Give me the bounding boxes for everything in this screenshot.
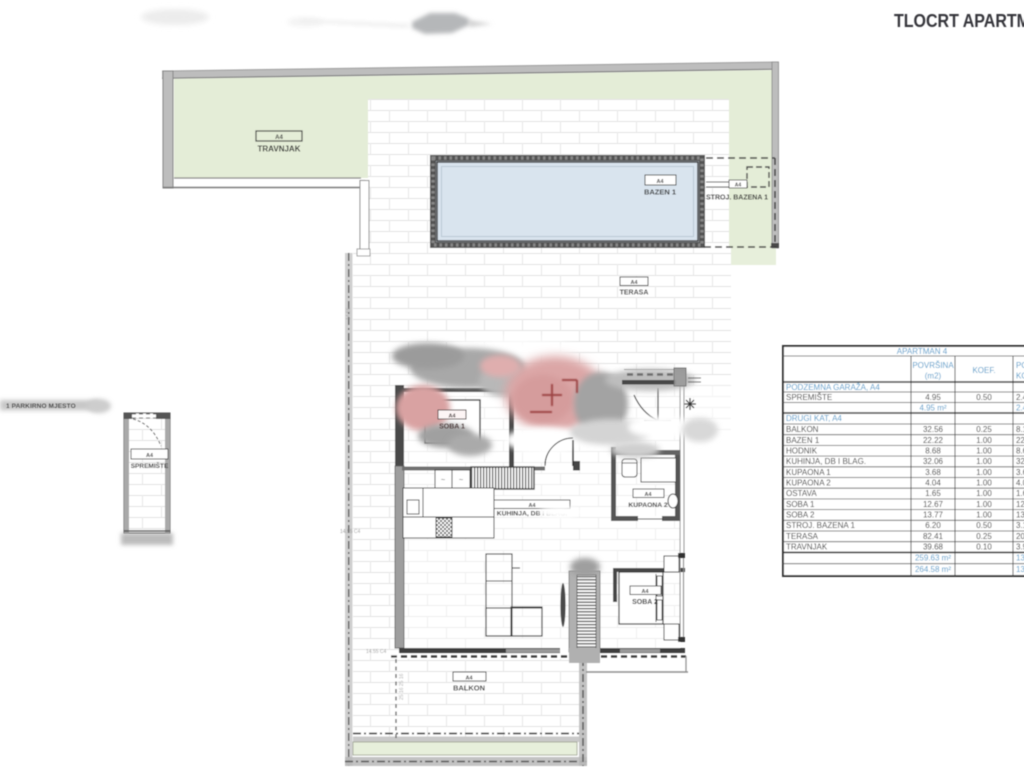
svg-text:139.91 m²: 139.91 m²: [1016, 565, 1024, 574]
svg-text:TERASA: TERASA: [620, 290, 649, 297]
svg-text:1.00: 1.00: [976, 468, 992, 477]
svg-text:SOBA 2: SOBA 2: [632, 599, 658, 606]
svg-text:KUHINJA, DB I BLAG.: KUHINJA, DB I BLAG.: [786, 457, 866, 466]
svg-text:OSTAVA: OSTAVA: [786, 489, 817, 498]
svg-text:1 PARKIRNO MJESTO: 1 PARKIRNO MJESTO: [6, 403, 76, 410]
svg-text:SPREMIŠTE: SPREMIŠTE: [131, 461, 169, 470]
svg-text:STROJ. BAZENA 1: STROJ. BAZENA 1: [706, 195, 768, 202]
svg-text:STROJ. BAZENA 1: STROJ. BAZENA 1: [786, 521, 855, 530]
svg-text:SOBA 1: SOBA 1: [786, 500, 815, 509]
svg-text:13.77: 13.77: [923, 511, 944, 520]
svg-text:1.00: 1.00: [976, 479, 992, 488]
svg-text:22.22: 22.22: [1016, 436, 1024, 445]
svg-text:DRUGI KAT, A4: DRUGI KAT, A4: [786, 414, 842, 423]
svg-text:1.65: 1.65: [1016, 489, 1024, 498]
svg-text:A4: A4: [735, 183, 742, 189]
svg-text:32.06: 32.06: [923, 457, 944, 466]
svg-text:A4: A4: [448, 414, 456, 420]
svg-text:12.67: 12.67: [1016, 500, 1024, 509]
svg-text:3.68: 3.68: [925, 468, 941, 477]
svg-text:KUPAONA 2: KUPAONA 2: [628, 502, 667, 509]
svg-text:0.50: 0.50: [976, 393, 992, 402]
svg-text:4.95: 4.95: [925, 393, 941, 402]
svg-text:TRAVNJAK: TRAVNJAK: [786, 543, 828, 552]
svg-text:82.41: 82.41: [923, 532, 944, 541]
svg-text:~: ~: [441, 477, 445, 484]
svg-text:KUPAONA 2: KUPAONA 2: [786, 479, 831, 488]
svg-text:TERASA: TERASA: [786, 532, 819, 541]
svg-text:BAZEN 1: BAZEN 1: [786, 436, 820, 445]
svg-text:1.00: 1.00: [976, 500, 992, 509]
svg-text:SOBA 1: SOBA 1: [439, 424, 465, 431]
svg-text:1.00: 1.00: [976, 436, 992, 445]
svg-text:2.48: 2.48: [1016, 393, 1024, 402]
svg-text:HODNIK: HODNIK: [786, 447, 818, 456]
svg-text:4.95 m²: 4.95 m²: [919, 404, 946, 413]
svg-text:A4: A4: [465, 676, 473, 682]
svg-text:8.68: 8.68: [925, 447, 941, 456]
svg-text:20.60: 20.60: [1016, 532, 1024, 541]
svg-text:32.06: 32.06: [1016, 457, 1024, 466]
svg-text:32.56: 32.56: [923, 425, 944, 434]
svg-text:12.67: 12.67: [923, 500, 944, 509]
svg-text:POVRŠINA: POVRŠINA: [912, 361, 954, 370]
svg-text:1.65: 1.65: [925, 489, 941, 498]
svg-text:0.25: 0.25: [976, 532, 992, 541]
svg-text:3.10: 3.10: [1016, 521, 1024, 530]
svg-text:POVRŠINA: POVRŠINA: [1016, 361, 1024, 370]
svg-text:134.96 m²: 134.96 m²: [1016, 554, 1024, 563]
svg-text:BALKON: BALKON: [453, 684, 485, 693]
svg-text:A4: A4: [644, 492, 652, 498]
svg-text:2.48 m²: 2.48 m²: [1016, 404, 1024, 413]
svg-text:8.14: 8.14: [1016, 425, 1024, 434]
svg-text:SOBA 2: SOBA 2: [786, 511, 815, 520]
svg-text:A4: A4: [528, 503, 536, 509]
svg-text:0.10: 0.10: [976, 543, 992, 552]
svg-text:13.77: 13.77: [1016, 511, 1024, 520]
svg-text:25 16 25 16: 25 16 25 16: [399, 673, 405, 700]
svg-text:1.00: 1.00: [976, 447, 992, 456]
svg-text:264.58 m²: 264.58 m²: [915, 565, 951, 574]
svg-text:0.50: 0.50: [976, 521, 992, 530]
svg-text:259.63 m²: 259.63 m²: [915, 554, 951, 563]
svg-text:4.04: 4.04: [925, 479, 941, 488]
svg-text:3.97: 3.97: [1016, 543, 1024, 552]
svg-text:1.00: 1.00: [976, 457, 992, 466]
svg-text:14.55 C4: 14.55 C4: [340, 529, 361, 535]
svg-text:1.00: 1.00: [976, 511, 992, 520]
svg-text:BAZEN 1: BAZEN 1: [644, 188, 676, 197]
svg-text:14.55: 14.55: [346, 307, 352, 320]
svg-text:KOEF. (m2): KOEF. (m2): [1016, 372, 1024, 381]
svg-text:0.25: 0.25: [976, 425, 992, 434]
svg-text:1.00: 1.00: [976, 489, 992, 498]
svg-text:TRAVNJAK: TRAVNJAK: [258, 145, 301, 154]
svg-text:(m2): (m2): [925, 372, 942, 381]
svg-text:BALKON: BALKON: [786, 425, 819, 434]
svg-text:A4: A4: [656, 179, 664, 185]
svg-text:39.68: 39.68: [923, 543, 944, 552]
svg-text:14.55 C4: 14.55 C4: [366, 649, 387, 655]
svg-text:6.20: 6.20: [925, 521, 941, 530]
svg-text:~: ~: [459, 477, 463, 484]
svg-text:3.68: 3.68: [1016, 468, 1024, 477]
svg-text:KUPAONA 1: KUPAONA 1: [786, 468, 831, 477]
svg-text:4.04: 4.04: [1016, 479, 1024, 488]
svg-text:22.22: 22.22: [923, 436, 944, 445]
svg-text:APARTMAN 4: APARTMAN 4: [897, 347, 948, 356]
svg-text:TLOCRT APARTM: TLOCRT APARTM: [894, 10, 1024, 31]
svg-text:KOEF.: KOEF.: [972, 366, 995, 375]
svg-text:A4: A4: [275, 135, 283, 141]
svg-text:A4: A4: [630, 280, 638, 286]
svg-text:PODZEMNA GARAŽA, A4: PODZEMNA GARAŽA, A4: [786, 383, 880, 392]
svg-text:SPREMIŠTE: SPREMIŠTE: [786, 393, 832, 402]
svg-text:A4: A4: [146, 453, 154, 459]
svg-text:8.68: 8.68: [1016, 447, 1024, 456]
svg-text:A4: A4: [641, 589, 649, 595]
